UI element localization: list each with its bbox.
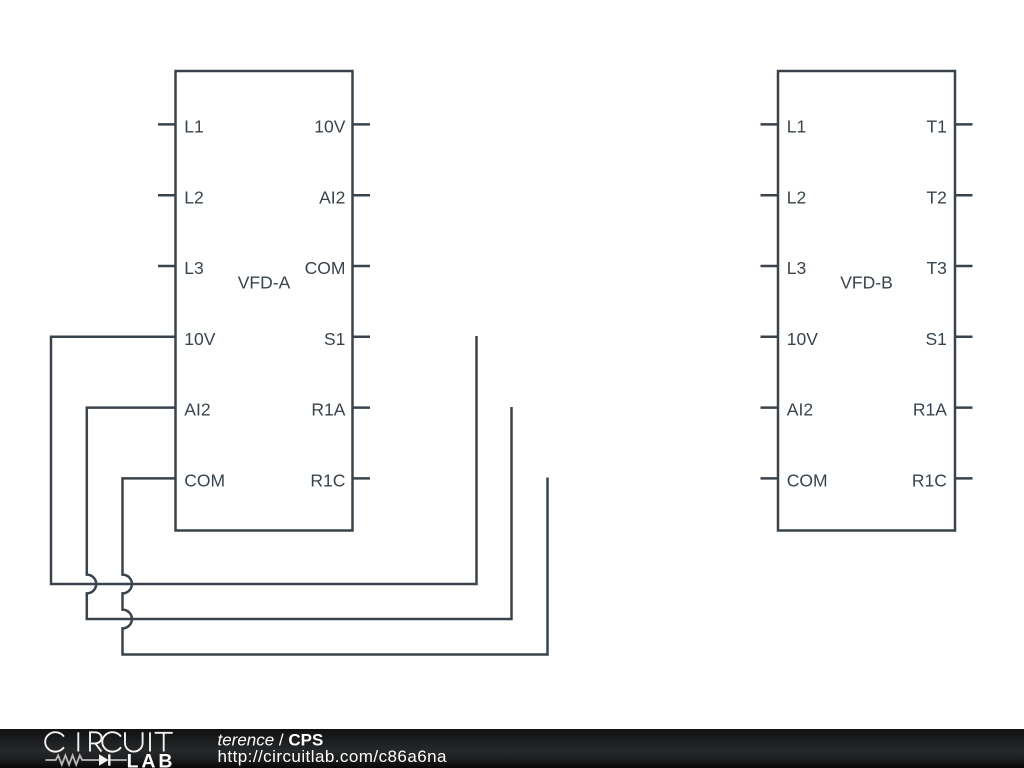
svg-text:http://circuitlab.com/c86a6na: http://circuitlab.com/c86a6na (218, 747, 448, 766)
svg-text:COM: COM (184, 471, 225, 491)
svg-text:R1C: R1C (912, 471, 947, 491)
svg-text:L3: L3 (184, 258, 203, 278)
svg-text:T3: T3 (926, 258, 946, 278)
svg-text:L1: L1 (184, 117, 203, 137)
svg-text:L3: L3 (787, 258, 806, 278)
svg-text:L1: L1 (787, 117, 806, 137)
svg-text:AI2: AI2 (184, 400, 210, 420)
svg-text:L2: L2 (184, 187, 203, 207)
svg-text:T1: T1 (926, 117, 946, 137)
svg-text:T2: T2 (926, 187, 946, 207)
svg-text:R1C: R1C (310, 471, 345, 491)
svg-text:AI2: AI2 (319, 187, 345, 207)
svg-text:10V: 10V (787, 329, 818, 349)
svg-text:S1: S1 (925, 329, 946, 349)
svg-text:COM: COM (305, 258, 346, 278)
svg-text:S1: S1 (324, 329, 345, 349)
svg-text:VFD-B: VFD-B (840, 273, 893, 293)
svg-text:AI2: AI2 (787, 400, 813, 420)
svg-text:10V: 10V (314, 117, 345, 137)
svg-text:COM: COM (787, 471, 828, 491)
svg-text:LAB: LAB (127, 750, 176, 768)
svg-text:R1A: R1A (913, 400, 947, 420)
svg-text:L2: L2 (787, 187, 806, 207)
svg-text:VFD-A: VFD-A (238, 273, 291, 293)
svg-text:10V: 10V (184, 329, 215, 349)
svg-text:R1A: R1A (311, 400, 345, 420)
